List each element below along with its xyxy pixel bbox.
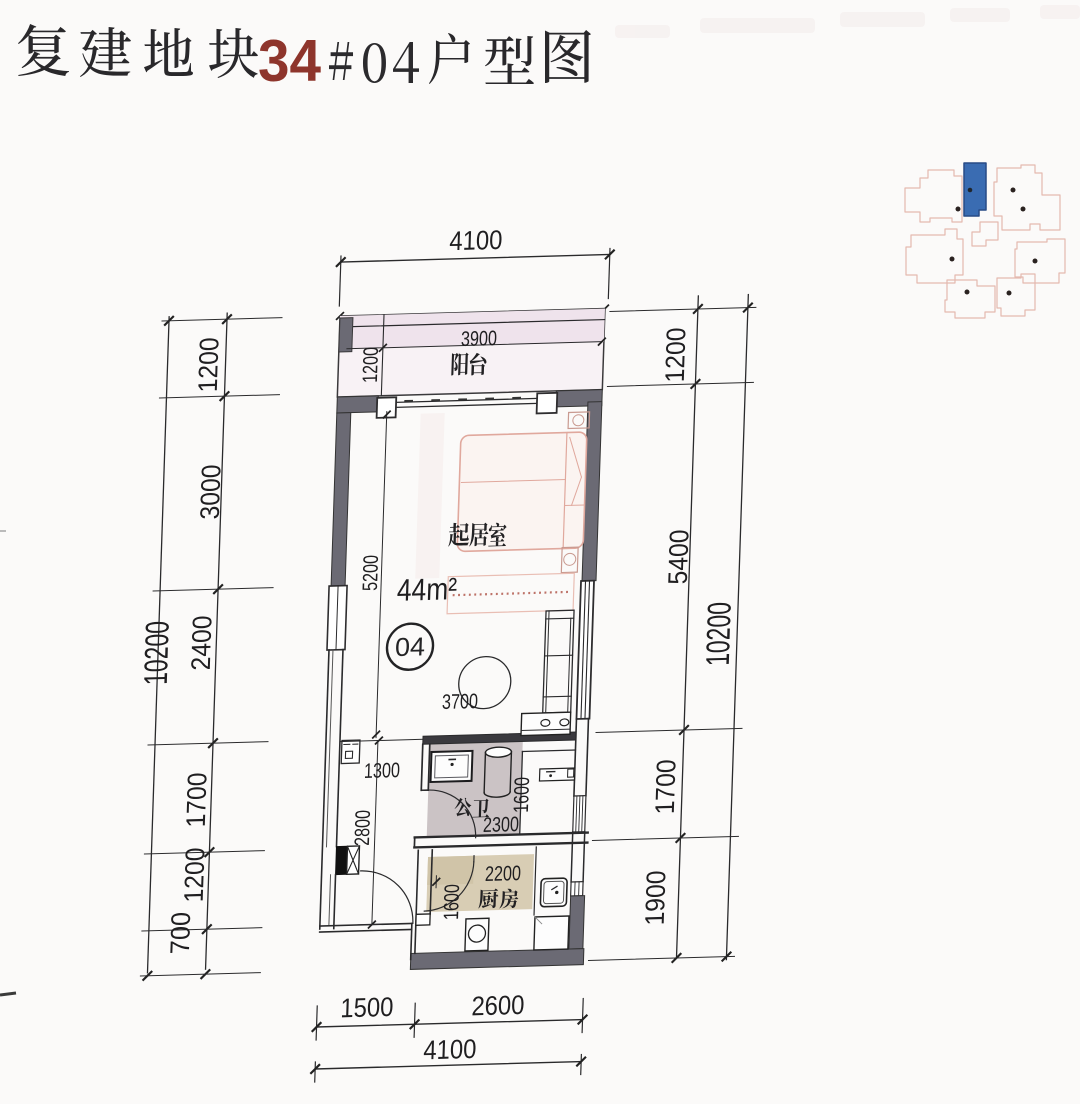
svg-text:1600: 1600	[440, 884, 464, 921]
svg-text:1600: 1600	[510, 777, 534, 814]
svg-text:10200: 10200	[137, 621, 176, 686]
svg-text:1200: 1200	[179, 847, 211, 903]
svg-text:5400: 5400	[663, 529, 695, 585]
svg-text:1200: 1200	[660, 327, 692, 383]
svg-text:1300: 1300	[364, 759, 401, 783]
svg-text:3700: 3700	[442, 690, 479, 714]
svg-text:10200: 10200	[699, 601, 738, 666]
svg-text:1200: 1200	[359, 347, 383, 384]
svg-text:4100: 4100	[449, 225, 503, 256]
svg-text:2200: 2200	[485, 862, 522, 886]
svg-text:44m²: 44m²	[396, 571, 457, 608]
svg-text:1500: 1500	[340, 992, 394, 1023]
svg-text:2300: 2300	[483, 813, 520, 837]
svg-text:4100: 4100	[423, 1034, 477, 1065]
svg-text:2400: 2400	[186, 615, 218, 671]
svg-text:5200: 5200	[359, 555, 383, 592]
svg-text:700: 700	[165, 912, 196, 955]
svg-text:2800: 2800	[351, 810, 375, 847]
svg-text:34: 34	[258, 28, 321, 94]
svg-text:1200: 1200	[193, 337, 225, 393]
svg-text:1700: 1700	[181, 772, 213, 828]
svg-text:2600: 2600	[471, 990, 525, 1021]
svg-text:3000: 3000	[195, 464, 227, 520]
svg-text:1700: 1700	[650, 759, 682, 815]
svg-text:3900: 3900	[461, 327, 498, 351]
svg-text:04: 04	[395, 631, 426, 662]
svg-text:1900: 1900	[640, 870, 672, 926]
